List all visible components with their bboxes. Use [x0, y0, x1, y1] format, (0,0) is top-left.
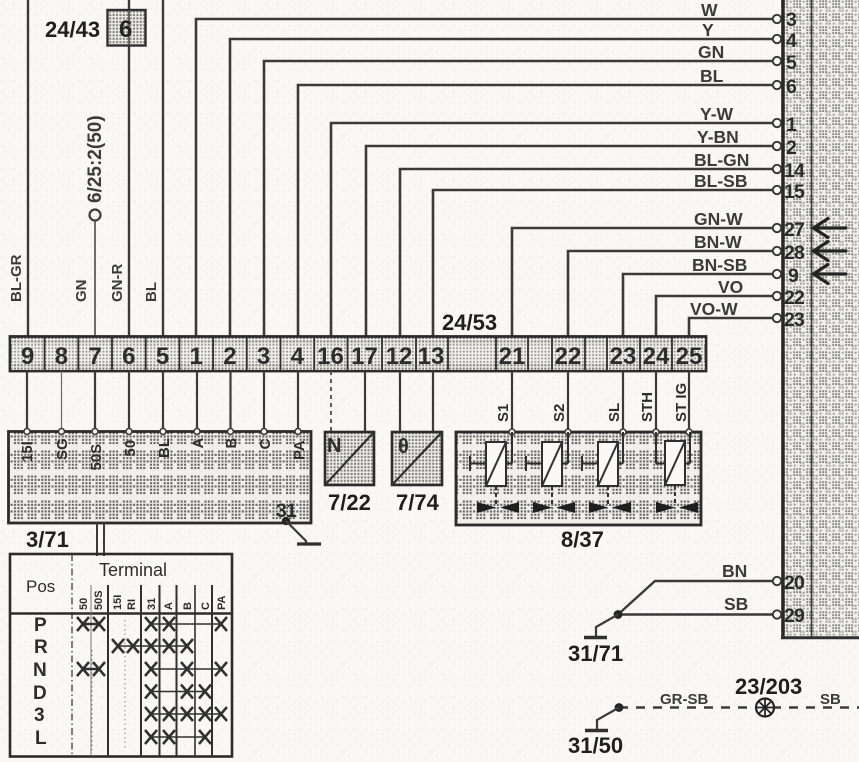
- svg-text:1: 1: [786, 114, 797, 136]
- svg-text:4: 4: [786, 30, 797, 52]
- svg-text:Terminal: Terminal: [99, 560, 167, 580]
- svg-text:8: 8: [55, 343, 68, 370]
- svg-text:31/71: 31/71: [568, 641, 623, 666]
- svg-text:21: 21: [499, 343, 526, 370]
- svg-text:A: A: [163, 602, 175, 610]
- svg-text:13: 13: [418, 343, 445, 370]
- svg-text:D: D: [33, 683, 47, 704]
- svg-text:BN: BN: [722, 561, 747, 581]
- svg-text:6/25:2(50): 6/25:2(50): [85, 115, 106, 203]
- svg-text:27: 27: [784, 219, 804, 241]
- svg-text:9: 9: [21, 343, 34, 370]
- svg-text:GN-R: GN-R: [109, 264, 126, 302]
- svg-text:50S: 50S: [93, 590, 105, 610]
- svg-text:7/22: 7/22: [328, 490, 371, 515]
- svg-text:3: 3: [786, 9, 797, 31]
- svg-text:BN-SB: BN-SB: [692, 255, 747, 275]
- svg-text:15: 15: [784, 181, 805, 203]
- svg-text:θ: θ: [398, 436, 409, 458]
- svg-text:GN: GN: [73, 280, 90, 303]
- svg-text:BL: BL: [143, 282, 160, 302]
- svg-text:24: 24: [643, 343, 670, 370]
- svg-text:6: 6: [122, 343, 135, 370]
- svg-text:BL: BL: [156, 438, 173, 458]
- svg-text:N: N: [33, 660, 47, 681]
- svg-text:15I: 15I: [112, 595, 124, 610]
- svg-text:PA: PA: [216, 595, 228, 610]
- svg-text:7: 7: [88, 343, 101, 370]
- svg-text:A: A: [190, 438, 207, 449]
- svg-text:16: 16: [317, 343, 344, 370]
- svg-text:50: 50: [78, 598, 90, 610]
- svg-text:B: B: [182, 602, 194, 610]
- svg-text:Y: Y: [702, 20, 714, 40]
- svg-text:23: 23: [784, 309, 805, 331]
- svg-text:BN-W: BN-W: [694, 232, 742, 252]
- svg-text:23: 23: [610, 343, 637, 370]
- svg-text:17: 17: [351, 343, 378, 370]
- svg-text:15I: 15I: [19, 441, 36, 462]
- svg-text:22: 22: [555, 343, 582, 370]
- svg-text:R: R: [34, 637, 48, 658]
- svg-text:P: P: [34, 615, 47, 636]
- svg-text:6: 6: [786, 76, 797, 98]
- svg-text:6: 6: [119, 16, 132, 43]
- svg-text:3: 3: [257, 343, 270, 370]
- svg-text:8/37: 8/37: [561, 527, 604, 552]
- svg-text:SB: SB: [724, 594, 748, 614]
- svg-text:S2: S2: [551, 404, 568, 422]
- svg-text:9: 9: [788, 265, 799, 287]
- svg-text:12: 12: [386, 343, 413, 370]
- svg-text:50: 50: [122, 440, 139, 457]
- svg-text:29: 29: [784, 605, 805, 627]
- svg-text:GN-W: GN-W: [694, 209, 743, 229]
- svg-text:C: C: [257, 439, 274, 450]
- svg-text:25: 25: [676, 343, 703, 370]
- svg-text:3: 3: [34, 705, 45, 726]
- svg-text:23/203: 23/203: [735, 674, 802, 699]
- svg-text:SB: SB: [820, 691, 841, 708]
- svg-text:GR-SB: GR-SB: [660, 691, 709, 708]
- svg-text:24/53: 24/53: [442, 310, 497, 335]
- svg-text:Y-W: Y-W: [700, 104, 734, 124]
- svg-text:31: 31: [146, 598, 158, 610]
- svg-text:31/50: 31/50: [568, 733, 623, 758]
- svg-text:S1: S1: [495, 404, 512, 422]
- svg-text:7/74: 7/74: [396, 490, 440, 515]
- svg-text:BL-SB: BL-SB: [694, 171, 747, 191]
- svg-text:2: 2: [223, 343, 236, 370]
- svg-text:RI: RI: [126, 599, 138, 610]
- svg-text:BL-GR: BL-GR: [8, 254, 25, 302]
- svg-text:W: W: [701, 0, 718, 20]
- svg-text:5: 5: [156, 343, 169, 370]
- svg-text:3/71: 3/71: [26, 527, 69, 552]
- svg-text:5: 5: [786, 52, 797, 74]
- svg-text:1: 1: [190, 343, 203, 370]
- svg-text:20: 20: [784, 572, 805, 594]
- svg-text:2: 2: [786, 137, 797, 159]
- svg-text:C: C: [200, 602, 212, 610]
- svg-text:Y-BN: Y-BN: [697, 127, 739, 147]
- svg-text:SL: SL: [606, 403, 623, 422]
- svg-text:BL-GN: BL-GN: [694, 150, 749, 170]
- svg-text:50S: 50S: [88, 444, 105, 471]
- svg-text:22: 22: [784, 287, 805, 309]
- svg-text:24/43: 24/43: [45, 17, 100, 42]
- svg-text:4: 4: [291, 343, 305, 370]
- svg-text:VO: VO: [718, 277, 743, 297]
- svg-text:14: 14: [784, 160, 805, 182]
- svg-text:ST IG: ST IG: [673, 383, 690, 422]
- svg-text:B: B: [223, 438, 240, 449]
- svg-text:BL: BL: [700, 66, 724, 86]
- svg-text:GN: GN: [698, 42, 724, 62]
- svg-text:28: 28: [784, 242, 805, 264]
- svg-text:N: N: [327, 435, 341, 457]
- svg-text:VO-W: VO-W: [690, 299, 738, 319]
- svg-text:Pos: Pos: [26, 577, 55, 596]
- svg-text:SG: SG: [54, 438, 71, 460]
- svg-text:L: L: [35, 728, 47, 749]
- svg-text:STH: STH: [639, 392, 656, 422]
- svg-text:PA: PA: [291, 440, 308, 460]
